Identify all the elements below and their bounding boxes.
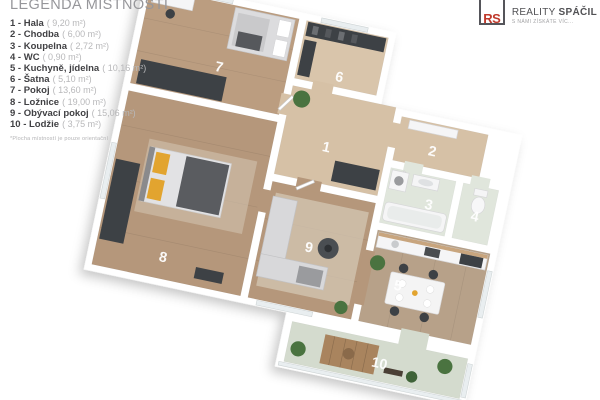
- room-number-10: 10: [370, 355, 389, 374]
- legend-item: 5 - Kuchyně, jídelna( 10,16 m²): [10, 63, 170, 74]
- rs-monogram: RS: [483, 12, 500, 25]
- legend-footnote: *Plocha místností je pouze orientační: [10, 136, 170, 142]
- legend-item: 2 - Chodba( 6,00 m²): [10, 29, 170, 40]
- legend-item: 9 - Obývací pokoj( 15,06 m²): [10, 108, 170, 119]
- rs-monogram-box: RS: [479, 0, 505, 25]
- company-logo: RS REALITY SPÁČIL S NÁMI ZÍSKÁTE VÍC...: [479, 0, 597, 25]
- real-estate-floorplan-page: 1 2 3 4 5 6 7 8 9 10 LEGENDA MÍSTNOSTÍ 1…: [0, 0, 600, 400]
- legend-item: 3 - Koupelna( 2,72 m²): [10, 41, 170, 52]
- company-name: REALITY SPÁČIL: [512, 7, 597, 18]
- company-tagline: S NÁMI ZÍSKÁTE VÍC...: [512, 19, 597, 25]
- legend-item: 4 - WC( 0,90 m²): [10, 52, 170, 63]
- legend-item: 8 - Ložnice( 19,00 m²): [10, 97, 170, 108]
- room-legend: LEGENDA MÍSTNOSTÍ 1 - Hala( 9,20 m²) 2 -…: [10, 0, 170, 142]
- legend-item: 6 - Šatna( 5,10 m²): [10, 74, 170, 85]
- legend-title: LEGENDA MÍSTNOSTÍ: [10, 0, 170, 13]
- legend-item: 10 - Lodžie( 3,75 m²): [10, 119, 170, 130]
- legend-item: 1 - Hala( 9,20 m²): [10, 18, 170, 29]
- legend-item: 7 - Pokoj( 13,60 m²): [10, 85, 170, 96]
- legend-list: 1 - Hala( 9,20 m²) 2 - Chodba( 6,00 m²) …: [10, 18, 170, 130]
